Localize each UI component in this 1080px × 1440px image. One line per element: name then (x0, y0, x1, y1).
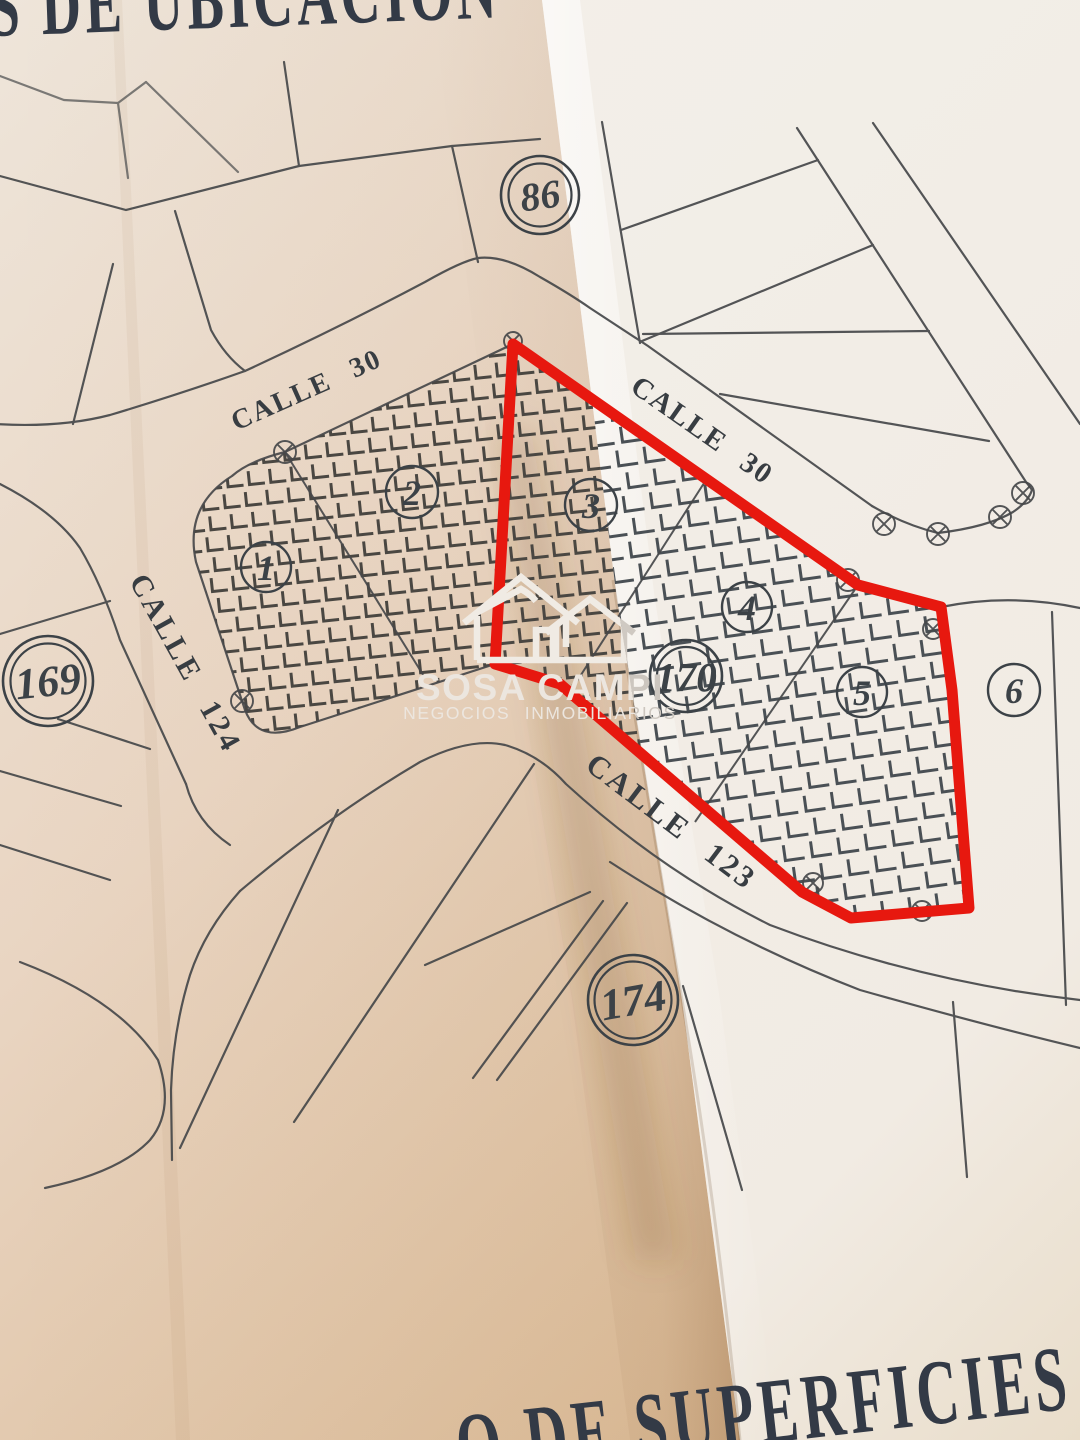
svg-text:SOSA CAMPI: SOSA CAMPI (416, 667, 664, 708)
svg-text:2: 2 (402, 473, 421, 513)
svg-text:1: 1 (257, 548, 275, 588)
svg-text:5: 5 (853, 673, 871, 713)
svg-text:86: 86 (517, 170, 563, 220)
svg-text:4: 4 (737, 588, 756, 628)
svg-text:3: 3 (581, 486, 600, 526)
svg-text:169: 169 (13, 654, 84, 710)
svg-text:170: 170 (655, 654, 717, 700)
svg-text:6: 6 (1005, 671, 1023, 711)
